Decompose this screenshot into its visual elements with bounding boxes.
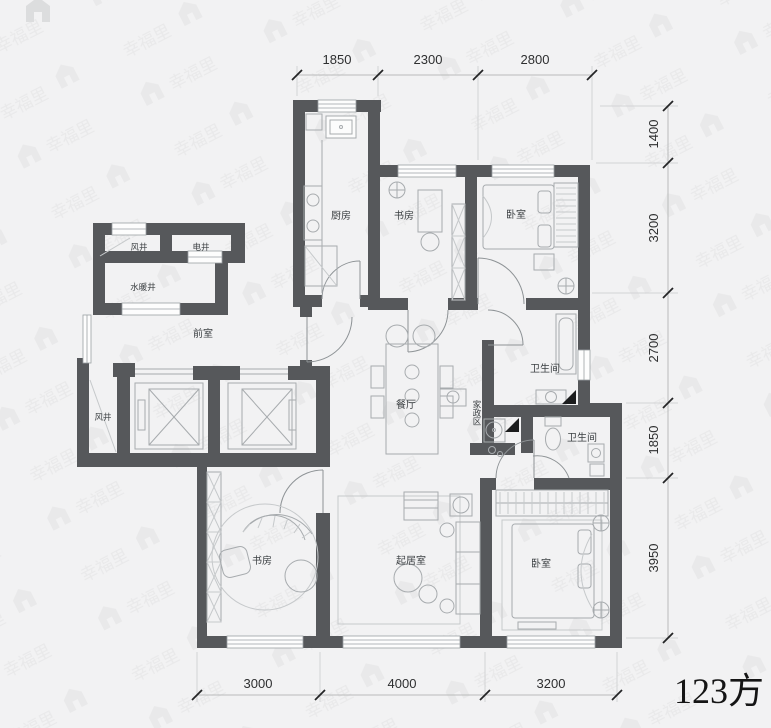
label-qianshi: 前室: [193, 327, 213, 340]
dim-right-5: 3950: [646, 544, 661, 573]
dim-bottom-2: 4000: [388, 676, 417, 691]
dim-right-3: 2700: [646, 334, 661, 363]
dim-right-4: 1850: [646, 426, 661, 455]
fan-icon: [593, 515, 609, 531]
ceiling-light-icon: [389, 182, 405, 198]
dim-top-2: 2300: [414, 52, 443, 67]
floorplan-page: 幸福里 幸福里: [0, 0, 771, 728]
label-shufang-bottom: 书房: [252, 554, 272, 567]
window-bedroom-top: [492, 165, 554, 177]
label-weishengjian-1: 卫生间: [530, 362, 560, 375]
louver-dianjing: [188, 251, 222, 263]
fan-icon: [593, 602, 609, 618]
area-label: 123方: [674, 671, 764, 711]
dim-right-1: 1400: [646, 120, 661, 149]
label-shuinuanjing: 水暖井: [130, 282, 156, 292]
dim-bottom-3: 3200: [537, 676, 566, 691]
label-woshi-top: 卧室: [506, 208, 526, 221]
window-study: [398, 165, 456, 177]
fan-icon: [558, 278, 574, 294]
label-weishengjian-2: 卫生间: [567, 431, 597, 444]
label-jiazhengqu: 家政区: [472, 400, 482, 426]
label-fengjing-left: 风井: [94, 412, 111, 422]
window-bath1: [578, 350, 590, 380]
window-qianshi: [83, 315, 91, 363]
label-woshi-bottom: 卧室: [531, 557, 551, 570]
window-bottom-2: [343, 636, 460, 648]
louver-shuinuanjing: [122, 303, 180, 315]
dim-bottom-1: 3000: [244, 676, 273, 691]
label-fengjing-top: 风井: [130, 242, 147, 252]
dim-top-1: 1850: [323, 52, 352, 67]
label-shufang-top: 书房: [394, 209, 414, 222]
louver-fengjing: [112, 223, 146, 235]
label-qijushi: 起居室: [396, 554, 426, 567]
dim-top-3: 2800: [521, 52, 550, 67]
window-bottom-3: [507, 636, 595, 648]
label-canting: 餐厅: [396, 398, 416, 411]
label-chufang: 厨房: [331, 209, 351, 222]
floorplan-canvas: 幸福里 幸福里: [0, 0, 771, 728]
window-kitchen: [318, 100, 356, 112]
dim-right-2: 3200: [646, 214, 661, 243]
label-dianjing: 电井: [192, 242, 209, 252]
window-bottom-1: [227, 636, 303, 648]
